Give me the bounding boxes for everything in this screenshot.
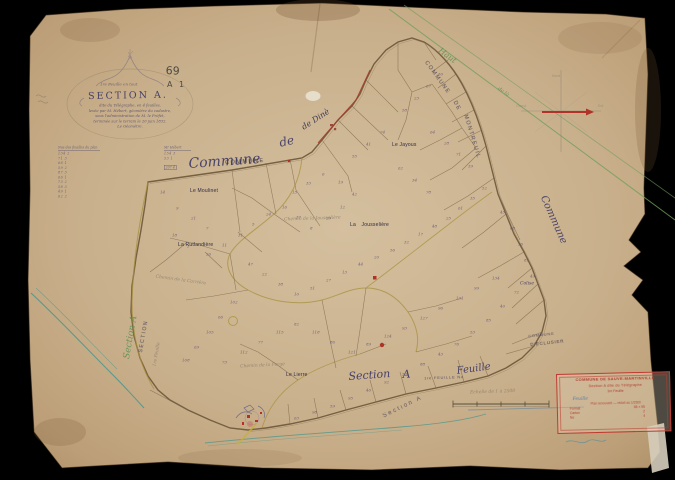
parcel-number: 25 (446, 216, 451, 221)
parcel-number: 24 (266, 212, 271, 217)
parcel-number: 21 (191, 216, 196, 221)
parcel-number: 96 (438, 306, 443, 311)
parcel-number: 39 (468, 164, 473, 169)
parcel-number: 46 (366, 388, 371, 393)
parcel-number: 99 (474, 286, 479, 291)
parcel-number: 131 (456, 296, 464, 301)
parcel-number: 121 (348, 350, 356, 355)
parcel-number: 67 (426, 84, 431, 89)
parcel-number: 105 (206, 330, 214, 335)
parcel-number: 72 (514, 290, 519, 295)
parcel-number: 48 (432, 224, 437, 229)
parcel-number: 43 (438, 352, 443, 357)
parcel-number: 57 (402, 372, 407, 377)
parcel-number: 14 (160, 190, 165, 195)
parcel-number: 23 (414, 96, 419, 101)
parcel-number: 6 (322, 172, 325, 177)
parcel-number: 40 (500, 304, 505, 309)
parcel-number: 3 (187, 244, 190, 249)
parcel-number: 42 (352, 192, 357, 197)
parcel-number: 85 (486, 318, 491, 323)
parcel-number: 88 (420, 362, 425, 367)
parcel-number: 112 (240, 350, 248, 355)
parcel-number: 95 (348, 396, 353, 401)
parcel-number: 81 (524, 258, 529, 263)
parcel-number: 51 (310, 286, 315, 291)
parcel-number: 31 (238, 233, 243, 238)
parcel-number: 58 (402, 108, 407, 113)
parcel-number: 17 (418, 232, 423, 237)
parcel-number: 34 (412, 178, 417, 183)
parcel-number: 82 (294, 322, 299, 327)
parcel-number: 16 (282, 205, 287, 210)
parcel-number: 22 (262, 272, 267, 277)
parcel-number: 49 (530, 274, 535, 279)
parcel-number: 86 (330, 340, 335, 345)
parcel-number: 124 (384, 334, 392, 339)
parcel-number: 30 (438, 72, 443, 77)
parcel-number: 62 (398, 166, 403, 171)
parcel-number: 47 (248, 262, 253, 267)
parcel-number: 52 (482, 186, 487, 191)
parcel-number: 66 (218, 315, 223, 320)
parcel-number: 68 (510, 226, 515, 231)
parcel-number: 76 (454, 342, 459, 347)
parcel-number: 33 (306, 181, 311, 186)
parcel-number: 55 (352, 154, 357, 159)
parcel-number: 77 (258, 340, 263, 345)
parcel-number: 10 (294, 292, 299, 297)
parcel-number: 53 (470, 330, 475, 335)
parcel-number: 37 (296, 215, 301, 220)
parcel-number: 9 (176, 206, 179, 211)
parcel-number: 7 (206, 226, 209, 231)
parcel-number: 127 (420, 316, 428, 321)
parcel-number: 41 (366, 142, 371, 147)
parcel-number: 36 (518, 242, 523, 247)
parcel-number: 45 (500, 210, 505, 215)
parcel-number: 89 (366, 342, 371, 347)
parcel-number: 61 (458, 206, 463, 211)
parcel-number: 59 (330, 404, 335, 409)
parcel-number: 78 (426, 190, 431, 195)
parcel-number: 74 (380, 130, 385, 135)
parcel-number: 69 (194, 345, 199, 350)
parcel-number: 20 (374, 255, 379, 260)
parcel-number: 93 (402, 326, 407, 331)
parcel-number: 26 (206, 252, 211, 257)
parcel-number: 5 (252, 222, 255, 227)
parcel-number: 38 (278, 282, 283, 287)
parcel-number: 102 (230, 300, 238, 305)
parcel-number: 44 (358, 262, 363, 267)
parcel-number: 27 (326, 278, 331, 283)
parcel-number: 64 (430, 130, 435, 135)
parcel-number: 56 (390, 248, 395, 253)
parcel-number: 32 (404, 240, 409, 245)
parcel-number: 63 (294, 416, 299, 421)
parcel-number: 28 (444, 141, 449, 146)
parcel-number: 108 (182, 358, 190, 363)
parcel-number: 13 (342, 270, 347, 275)
parcel-number: 29 (326, 216, 331, 221)
parcel-number: 11 (222, 243, 227, 248)
parcel-number: 98 (312, 410, 317, 415)
parcel-number: 8 (310, 226, 313, 231)
parcel-numbers-layer: 1492171832611315241637829124219633154722… (0, 0, 675, 480)
scanned-map-stage: 1re Feuille en tout SECTION A. dite du T… (0, 0, 675, 480)
parcel-number: 92 (384, 380, 389, 385)
parcel-number: 118 (312, 330, 320, 335)
parcel-number: 18 (172, 233, 177, 238)
parcel-number: 134 (492, 276, 500, 281)
parcel-number: 12 (340, 205, 345, 210)
parcel-number: 73 (222, 360, 227, 365)
parcel-number: 35 (470, 196, 475, 201)
parcel-number: 15 (292, 190, 297, 195)
parcel-number: 115 (276, 330, 284, 335)
parcel-number: 19 (338, 180, 343, 185)
parcel-number: 71 (456, 152, 461, 157)
